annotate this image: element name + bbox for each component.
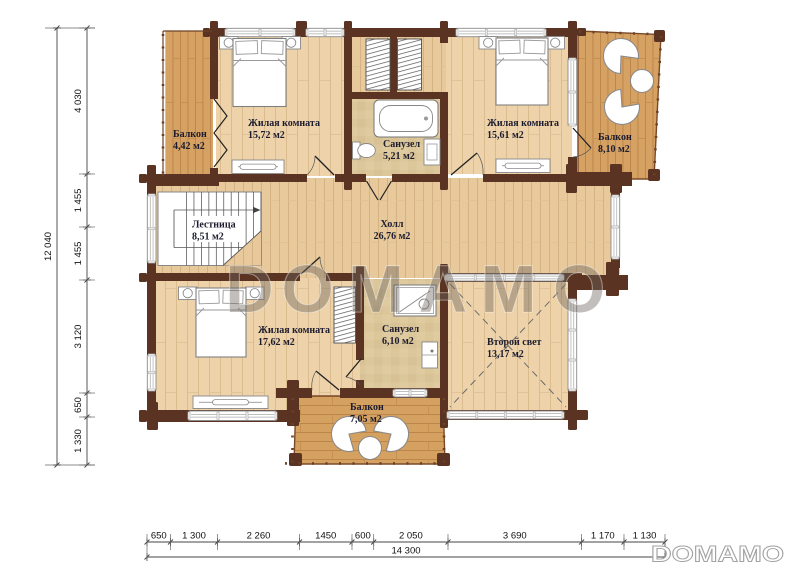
svg-text:15,61 м2: 15,61 м2: [487, 130, 524, 141]
svg-text:650: 650: [73, 397, 84, 413]
svg-text:3 120: 3 120: [73, 325, 84, 349]
svg-text:1450: 1450: [315, 531, 336, 542]
svg-text:Холл: Холл: [380, 219, 403, 230]
svg-text:2 260: 2 260: [247, 531, 271, 542]
svg-text:1 170: 1 170: [591, 531, 615, 542]
svg-text:15,72 м2: 15,72 м2: [248, 130, 285, 141]
svg-text:8,10 м2: 8,10 м2: [598, 144, 630, 155]
svg-text:4 030: 4 030: [73, 89, 84, 113]
svg-text:5,21 м2: 5,21 м2: [383, 151, 415, 162]
svg-text:1 300: 1 300: [182, 531, 206, 542]
svg-text:6,10 м2: 6,10 м2: [382, 336, 414, 347]
svg-text:Жилая комната: Жилая комната: [487, 118, 559, 129]
svg-text:Балкон: Балкон: [350, 402, 384, 413]
svg-text:O: O: [553, 252, 605, 327]
svg-text:3 690: 3 690: [503, 531, 527, 542]
svg-text:Балкон: Балкон: [598, 132, 632, 143]
svg-text:O: O: [281, 252, 333, 327]
svg-text:4,42 м2: 4,42 м2: [173, 141, 205, 152]
svg-text:M: M: [348, 252, 404, 327]
svg-text:Жилая комната: Жилая комната: [248, 118, 320, 129]
svg-text:Санузел: Санузел: [383, 139, 420, 150]
svg-text:650: 650: [151, 531, 167, 542]
svg-text:A: A: [419, 252, 467, 327]
svg-text:7,05 м2: 7,05 м2: [350, 414, 382, 425]
svg-text:8,51 м2: 8,51 м2: [192, 232, 224, 243]
svg-text:1 330: 1 330: [73, 429, 84, 453]
svg-text:1 130: 1 130: [633, 531, 657, 542]
svg-text:600: 600: [355, 531, 371, 542]
svg-text:1 455: 1 455: [73, 242, 84, 266]
svg-text:D: D: [225, 252, 273, 327]
svg-text:13,17 м2: 13,17 м2: [487, 349, 524, 360]
svg-text:Второй свет: Второй свет: [487, 337, 542, 348]
svg-text:DOMAMO: DOMAMO: [651, 542, 784, 567]
svg-text:14 300: 14 300: [391, 546, 420, 557]
svg-text:1 455: 1 455: [73, 189, 84, 213]
svg-text:Балкон: Балкон: [173, 129, 207, 140]
svg-text:12 040: 12 040: [43, 232, 54, 261]
svg-text:17,62 м2: 17,62 м2: [258, 337, 295, 348]
svg-text:M: M: [481, 252, 537, 327]
svg-text:2 050: 2 050: [399, 531, 423, 542]
svg-text:Лестница: Лестница: [192, 220, 236, 231]
svg-text:26,76 м2: 26,76 м2: [374, 231, 411, 242]
